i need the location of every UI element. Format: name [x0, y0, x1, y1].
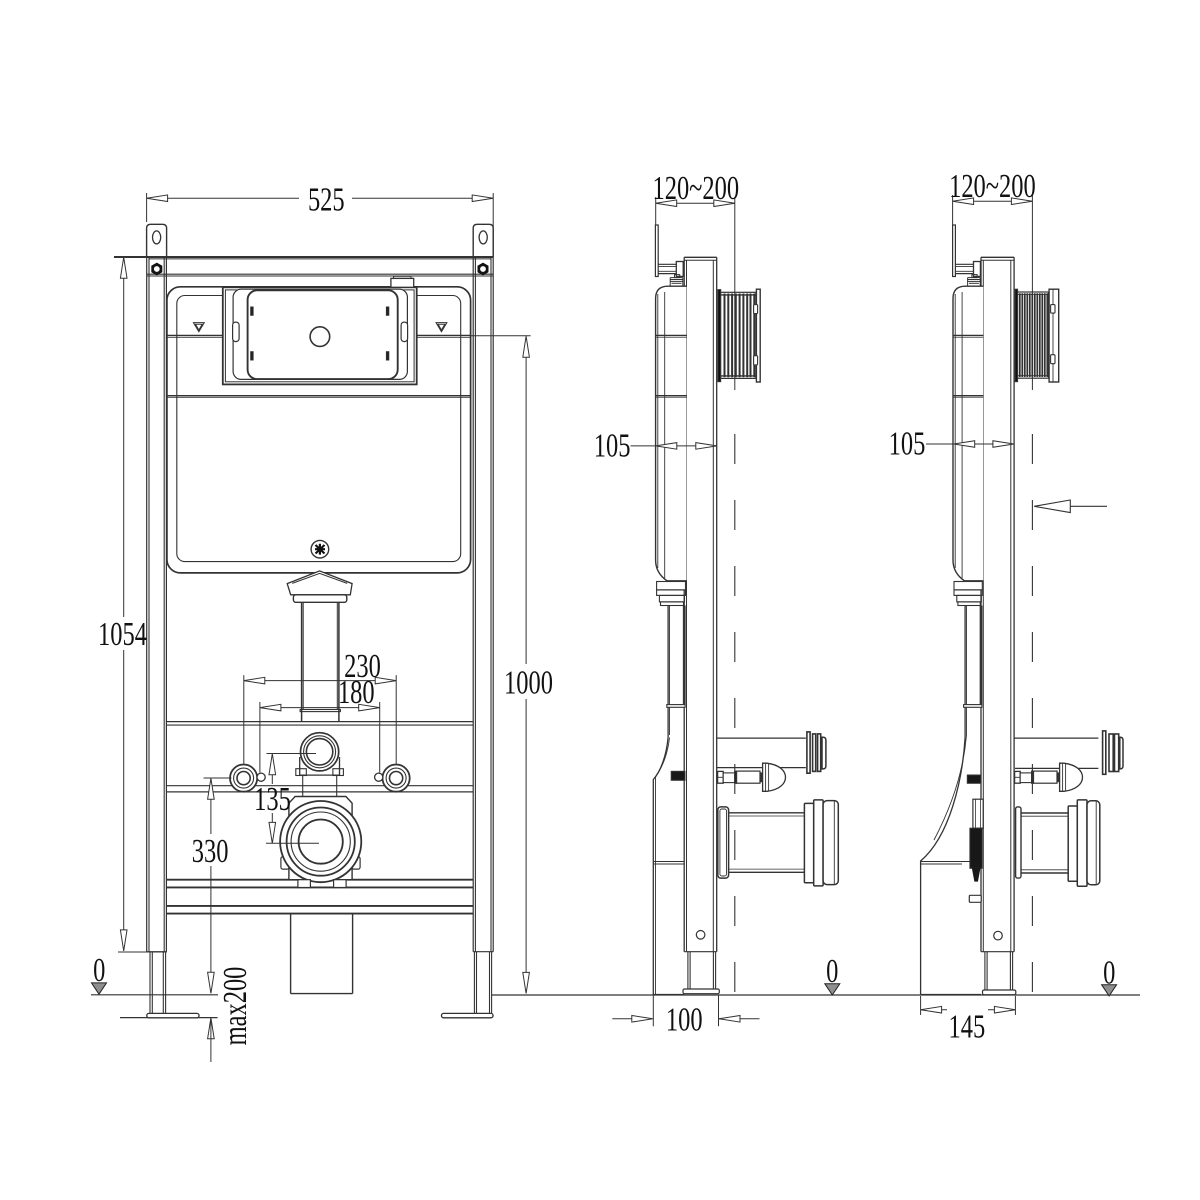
svg-text:120~200: 120~200: [949, 169, 1036, 206]
svg-text:105: 105: [889, 426, 926, 463]
svg-text:max200: max200: [217, 967, 254, 1046]
svg-text:120~200: 120~200: [652, 170, 739, 207]
svg-text:525: 525: [308, 182, 345, 219]
svg-text:105: 105: [594, 428, 631, 465]
svg-text:135: 135: [254, 781, 291, 818]
svg-text:180: 180: [338, 675, 375, 712]
svg-text:330: 330: [192, 833, 229, 870]
svg-text:145: 145: [949, 1009, 986, 1046]
svg-text:100: 100: [666, 1002, 703, 1039]
svg-text:1000: 1000: [504, 665, 553, 702]
svg-text:1054: 1054: [98, 616, 147, 653]
